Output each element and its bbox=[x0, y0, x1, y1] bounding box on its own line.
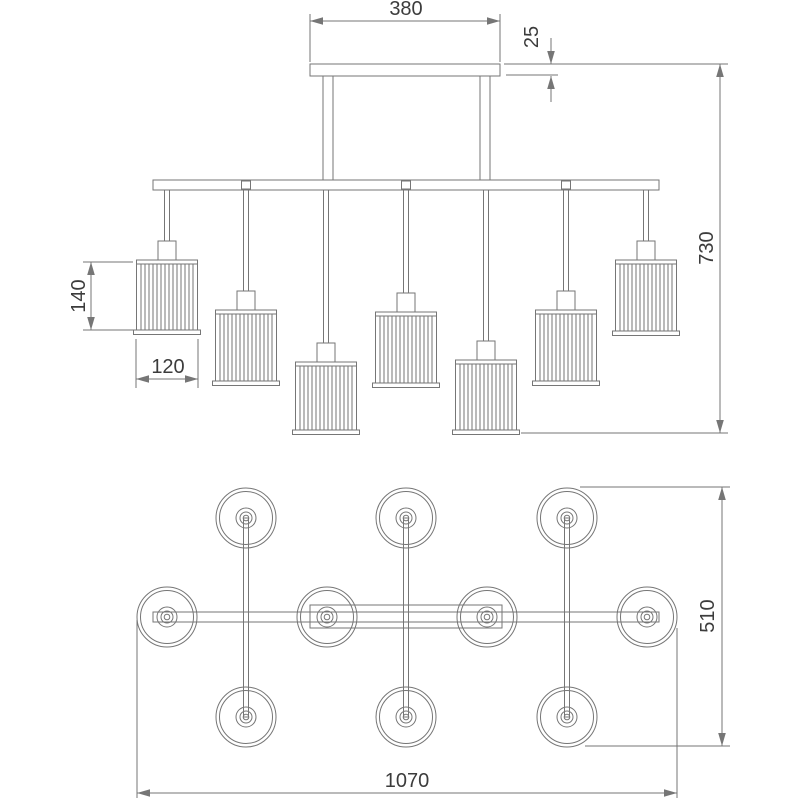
shade-body bbox=[296, 366, 357, 430]
arrowhead-icon bbox=[718, 733, 726, 746]
shade-base-rim bbox=[373, 383, 440, 388]
arrowhead-icon bbox=[664, 789, 677, 797]
shade-circle bbox=[484, 614, 490, 620]
shade-circle bbox=[301, 591, 354, 644]
arrowhead-icon bbox=[137, 789, 150, 797]
arrowhead-icon bbox=[547, 51, 555, 64]
arrowhead-icon bbox=[87, 262, 95, 275]
socket-cup bbox=[397, 293, 415, 312]
dimension-overall-depth: 510 bbox=[580, 487, 730, 746]
shade-circle bbox=[164, 614, 170, 620]
dimension-label: 730 bbox=[696, 231, 718, 264]
shade-top-band bbox=[137, 260, 198, 264]
shade-circle bbox=[161, 611, 173, 623]
shade-top-band bbox=[616, 260, 677, 264]
shade-circle bbox=[137, 587, 197, 647]
shade-top-band bbox=[296, 362, 357, 366]
front-view bbox=[134, 64, 680, 435]
shade-base-rim bbox=[533, 381, 600, 386]
shade-top-band bbox=[376, 312, 437, 316]
dimensions: 380257301401201070510 bbox=[68, 0, 730, 798]
shade-body bbox=[376, 316, 437, 383]
shade-circle bbox=[644, 614, 650, 620]
ceiling-canopy bbox=[310, 64, 500, 76]
arm-connector bbox=[242, 181, 251, 189]
shade-top-band bbox=[536, 310, 597, 314]
dimension-canopy-width: 380 bbox=[310, 0, 500, 62]
dimension-label: 510 bbox=[697, 599, 719, 632]
arm-connector bbox=[562, 181, 571, 189]
dimension-shade-width: 120 bbox=[136, 339, 198, 388]
shade-top-band bbox=[456, 360, 517, 364]
dimension-label: 140 bbox=[68, 279, 90, 312]
technical-drawing: 380257301401201070510 bbox=[0, 0, 800, 800]
shade-body bbox=[137, 264, 198, 330]
suspension-rod bbox=[244, 190, 249, 291]
arm-connector bbox=[402, 181, 411, 189]
drawing-canvas: 380257301401201070510 bbox=[0, 0, 800, 800]
lamp bbox=[453, 190, 520, 435]
dimension-label: 1070 bbox=[385, 770, 430, 792]
shade-circle bbox=[617, 587, 677, 647]
dimension-label: 25 bbox=[521, 26, 543, 48]
horizontal-bar-plan bbox=[153, 612, 659, 622]
arrowhead-icon bbox=[87, 317, 95, 330]
lamp bbox=[373, 190, 440, 388]
shade-body bbox=[456, 364, 517, 430]
shade-circle bbox=[324, 614, 330, 620]
arrowhead-icon bbox=[716, 420, 724, 433]
shade-base-rim bbox=[213, 381, 280, 386]
shade-circle bbox=[321, 611, 333, 623]
suspension-rod bbox=[324, 190, 329, 343]
arrowhead-icon bbox=[716, 64, 724, 77]
shade-circle bbox=[481, 611, 493, 623]
arrowhead-icon bbox=[310, 17, 323, 25]
arrowhead-icon bbox=[487, 17, 500, 25]
socket-cup bbox=[317, 343, 335, 362]
arrowhead-icon bbox=[547, 76, 555, 89]
suspension-rod bbox=[165, 190, 170, 241]
lamp bbox=[134, 190, 201, 335]
arrowhead-icon bbox=[185, 375, 198, 383]
lamp bbox=[293, 190, 360, 435]
suspension-rod bbox=[404, 190, 409, 293]
canopy-stem bbox=[323, 76, 333, 180]
shade-body bbox=[616, 264, 677, 331]
shade-circle bbox=[157, 607, 177, 627]
arrowhead-icon bbox=[718, 487, 726, 500]
shade-circle bbox=[637, 607, 657, 627]
suspension-rod bbox=[644, 190, 649, 241]
shade-circle bbox=[141, 591, 194, 644]
shade-circle bbox=[641, 611, 653, 623]
suspension-rod bbox=[484, 190, 489, 341]
shade-circle bbox=[457, 587, 517, 647]
shade-top-band bbox=[216, 310, 277, 314]
canopy-outline-plan bbox=[310, 605, 502, 628]
lamp bbox=[533, 190, 600, 386]
shade-plan bbox=[137, 587, 197, 647]
shade-circle bbox=[297, 587, 357, 647]
plan-view bbox=[137, 488, 677, 747]
dimension-shade-height: 140 bbox=[68, 262, 133, 330]
socket-cup bbox=[557, 291, 575, 310]
canopy-stem bbox=[480, 76, 490, 180]
shade-circle bbox=[477, 607, 497, 627]
shade-body bbox=[536, 314, 597, 381]
shade-circle bbox=[317, 607, 337, 627]
shade-circle bbox=[621, 591, 674, 644]
suspension-rod bbox=[564, 190, 569, 291]
shade-plan bbox=[297, 587, 357, 647]
shade-circle bbox=[461, 591, 514, 644]
shade-base-rim bbox=[453, 430, 520, 435]
shade-plan bbox=[457, 587, 517, 647]
socket-cup bbox=[158, 241, 176, 260]
shade-base-rim bbox=[293, 430, 360, 435]
shade-plan bbox=[617, 587, 677, 647]
lamp bbox=[213, 190, 280, 386]
shade-base-rim bbox=[613, 331, 680, 336]
socket-cup bbox=[477, 341, 495, 360]
shade-base-rim bbox=[134, 330, 201, 335]
socket-cup bbox=[637, 241, 655, 260]
socket-cup bbox=[237, 291, 255, 310]
arrowhead-icon bbox=[136, 375, 149, 383]
lamp bbox=[613, 190, 680, 336]
dimension-label: 120 bbox=[151, 356, 184, 378]
shade-body bbox=[216, 314, 277, 381]
dimension-label: 380 bbox=[389, 0, 422, 20]
